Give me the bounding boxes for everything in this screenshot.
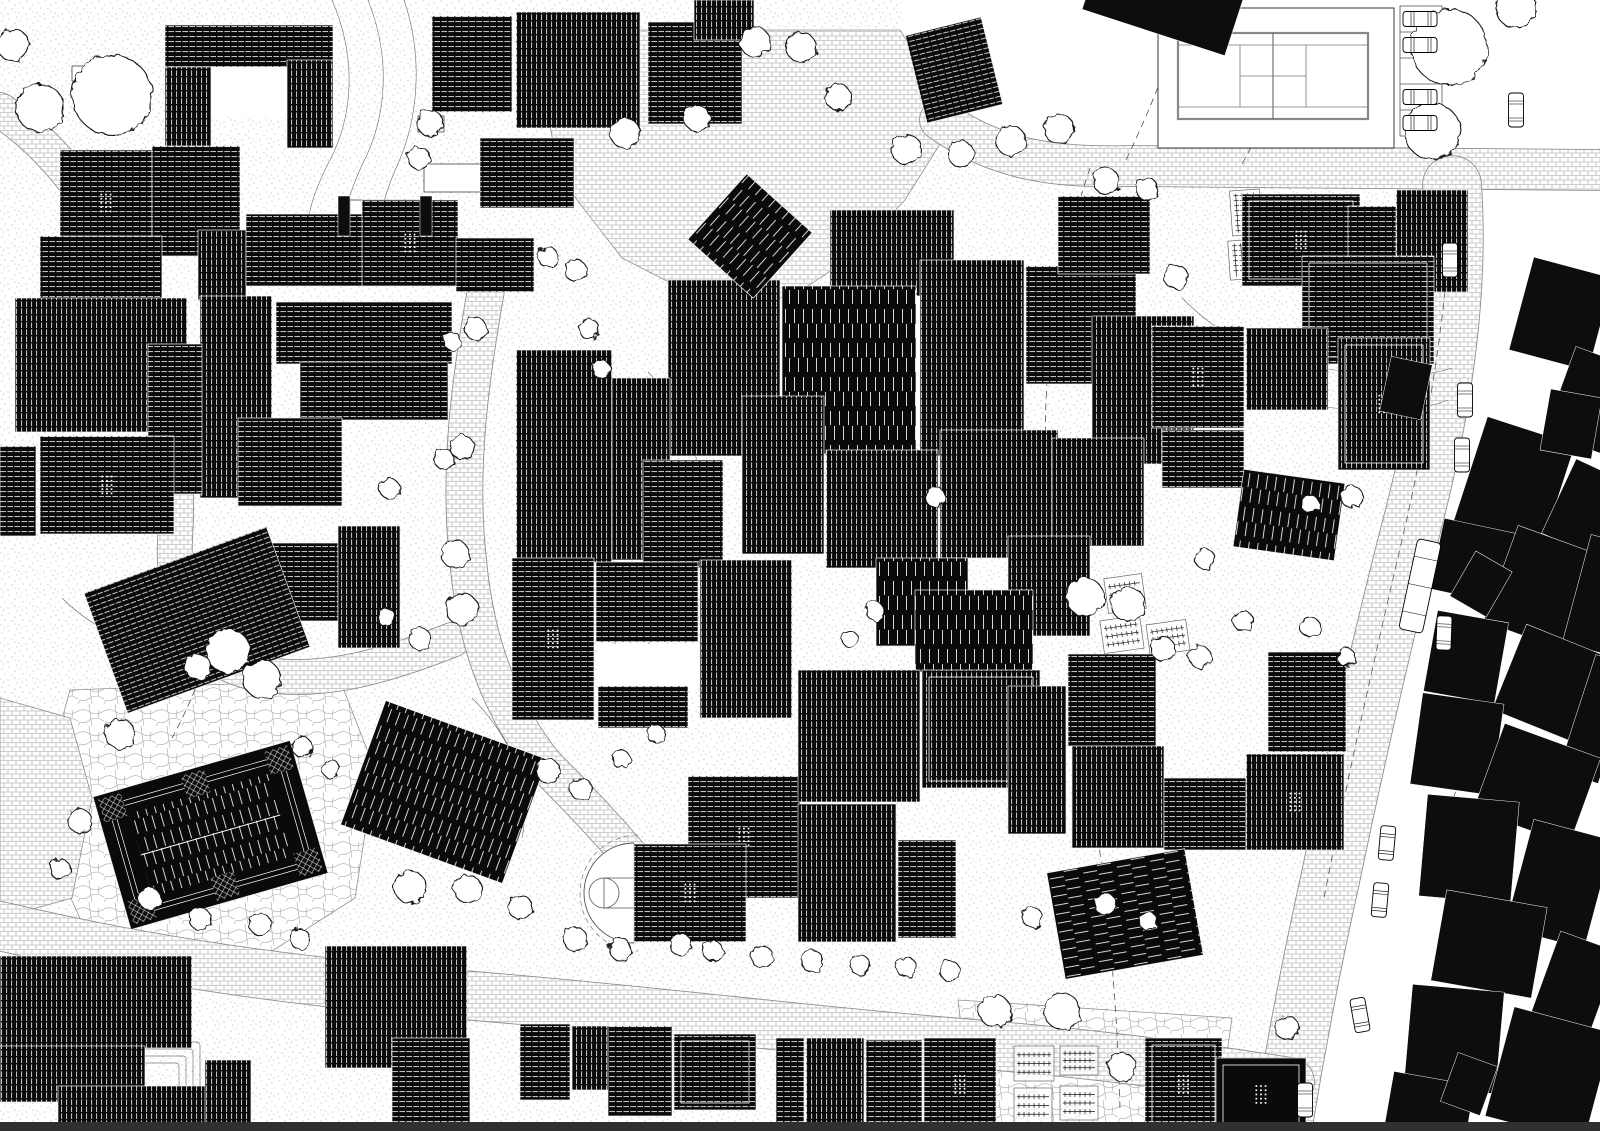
- context-building: [420, 196, 432, 236]
- rooflight-dot: [1300, 231, 1302, 233]
- tree: [996, 126, 1026, 156]
- tree: [1022, 907, 1042, 927]
- car: [1403, 116, 1437, 131]
- rooflight-dot: [964, 1088, 966, 1090]
- building: [287, 60, 333, 148]
- car: [1436, 616, 1452, 651]
- rooflight-dot: [739, 832, 741, 834]
- border-layer: [0, 1122, 1600, 1131]
- building: [920, 260, 1024, 456]
- tree: [1233, 611, 1253, 631]
- tree: [50, 859, 70, 879]
- rooflight-dot: [548, 638, 550, 640]
- building: [516, 350, 612, 562]
- building-roof: [1072, 746, 1164, 848]
- tree: [1044, 993, 1080, 1029]
- rooflight-dot: [1197, 385, 1199, 387]
- building-roof: [300, 362, 448, 420]
- tree: [322, 760, 340, 778]
- tree: [579, 319, 599, 339]
- rooflight-dot: [1187, 1084, 1189, 1086]
- tree: [1094, 893, 1116, 915]
- building: [300, 362, 448, 420]
- building: [1268, 652, 1346, 752]
- car: [1298, 1083, 1313, 1117]
- rooflight-dot: [689, 901, 691, 903]
- context-building: [1423, 610, 1508, 703]
- rooflight-dot: [106, 488, 108, 490]
- building: [362, 200, 458, 286]
- building: [1052, 438, 1144, 546]
- rooflight-dot: [552, 630, 554, 632]
- rooflight-dot: [743, 832, 745, 834]
- tree: [592, 360, 610, 378]
- tree: [434, 449, 454, 469]
- tree: [380, 479, 400, 499]
- rooflight-dot: [105, 206, 107, 208]
- rooflight-dot: [1294, 797, 1296, 799]
- rooflight-dot: [105, 211, 107, 213]
- rooflight-dot: [748, 836, 750, 838]
- context-building: [1419, 794, 1520, 904]
- building-roof: [276, 302, 452, 364]
- rooflight-dot: [1202, 368, 1204, 370]
- tree: [925, 487, 945, 507]
- rooflight-dot: [1305, 243, 1307, 245]
- tree: [536, 759, 560, 783]
- tree: [68, 809, 92, 833]
- context-building: [1431, 890, 1547, 998]
- car-body: [1436, 616, 1452, 651]
- building: [0, 956, 192, 1048]
- rooflight-dot: [1379, 412, 1381, 414]
- building-roof: [915, 590, 1033, 672]
- rooflight-dot: [964, 1092, 966, 1094]
- rooflight-dot: [955, 1084, 957, 1086]
- garden-plot: [1060, 1046, 1098, 1075]
- rooflight-dot: [1187, 1075, 1189, 1077]
- rooflight-dot: [405, 234, 407, 236]
- rooflight-dot: [694, 888, 696, 890]
- tree: [243, 660, 281, 698]
- rooflight-dot: [106, 493, 108, 495]
- car: [1403, 90, 1437, 105]
- building-roof: [0, 446, 36, 536]
- rooflight-dot: [1265, 1102, 1267, 1104]
- rooflight-dot: [1305, 239, 1307, 241]
- garden-plot: [1014, 1088, 1052, 1123]
- car: [1443, 243, 1458, 277]
- rooflight-dot: [1296, 231, 1298, 233]
- tree: [1139, 912, 1157, 930]
- rooflight-dot: [106, 484, 108, 486]
- rooflight-dot: [1178, 1084, 1180, 1086]
- car-body: [1298, 1083, 1313, 1117]
- building: [198, 230, 246, 300]
- building-roof: [572, 1026, 612, 1090]
- rooflight-dot: [409, 234, 411, 236]
- building: [915, 590, 1033, 672]
- rooflight-dot: [739, 840, 741, 842]
- rooflight-dot: [557, 634, 559, 636]
- building-roof: [238, 418, 342, 506]
- rooflight-dot: [1265, 1094, 1267, 1096]
- tree: [1195, 549, 1215, 569]
- rooflight-dot: [111, 484, 113, 486]
- rooflight-dot: [405, 246, 407, 248]
- tree: [1275, 1016, 1299, 1040]
- building-roof: [866, 1040, 922, 1131]
- rooflight-dot: [552, 647, 554, 649]
- tree: [394, 871, 426, 903]
- rooflight-dot: [1290, 793, 1292, 795]
- building: [516, 12, 640, 128]
- tree: [684, 105, 710, 131]
- building-roof: [516, 350, 612, 562]
- rooflight-dot: [557, 630, 559, 632]
- site-plan: [0, 0, 1600, 1131]
- rooflight-dot: [689, 884, 691, 886]
- rooflight-dot: [1290, 805, 1292, 807]
- building-roof: [898, 840, 956, 938]
- tree: [105, 719, 135, 749]
- building: [40, 236, 162, 302]
- rooflight-dot: [743, 840, 745, 842]
- rooflight-dot: [1300, 235, 1302, 237]
- building: [1072, 746, 1164, 848]
- rooflight-dot: [405, 242, 407, 244]
- building: [338, 526, 400, 648]
- building: [520, 1024, 570, 1100]
- rooflight-dot: [685, 884, 687, 886]
- building: [898, 840, 956, 938]
- building: [1164, 778, 1246, 850]
- tree: [185, 654, 211, 680]
- tree: [609, 938, 631, 960]
- rooflight-dot: [1256, 1102, 1258, 1104]
- rooflight-dot: [748, 845, 750, 847]
- building-roof: [40, 236, 162, 302]
- site-plan-canvas: [0, 0, 1600, 1131]
- tree: [612, 750, 630, 768]
- context-building: [338, 196, 350, 236]
- rooflight-dot: [1299, 797, 1301, 799]
- rooflight-dot: [1202, 380, 1204, 382]
- rooflight-dot: [409, 246, 411, 248]
- tree: [751, 946, 773, 968]
- tree: [249, 913, 271, 935]
- car-body: [1403, 90, 1437, 105]
- rooflight-dot: [689, 896, 691, 898]
- tree: [850, 955, 870, 975]
- building-roof: [1008, 686, 1066, 834]
- rooflight-dot: [414, 251, 416, 253]
- garden-plot: [1060, 1086, 1098, 1120]
- building: [598, 686, 688, 728]
- tree: [446, 593, 478, 625]
- rooflight-dot: [1260, 1098, 1262, 1100]
- building: [798, 670, 920, 802]
- tree: [292, 737, 312, 757]
- tree: [408, 147, 430, 169]
- tree: [465, 318, 487, 340]
- building-roof: [198, 230, 246, 300]
- rooflight-dot: [959, 1075, 961, 1077]
- rooflight-dot: [1183, 1092, 1185, 1094]
- building-roof: [1233, 469, 1345, 560]
- building: [596, 562, 698, 642]
- tree: [786, 32, 816, 62]
- rooflight-dot: [1294, 793, 1296, 795]
- rooflight-dot: [1300, 239, 1302, 241]
- garden-plot: [1100, 615, 1144, 653]
- rooflight-dot: [1193, 380, 1195, 382]
- rooflight-dot: [1305, 248, 1307, 250]
- rooflight-dot: [1187, 1079, 1189, 1081]
- building: [776, 1038, 804, 1131]
- building: [1246, 328, 1328, 410]
- building: [205, 1060, 251, 1131]
- rooflight-dot: [405, 251, 407, 253]
- building-roof: [0, 956, 192, 1048]
- rooflight-dot: [743, 836, 745, 838]
- building: [456, 238, 534, 292]
- rooflight-dot: [1256, 1094, 1258, 1096]
- building-roof: [1068, 654, 1156, 746]
- car: [1458, 383, 1473, 417]
- building-roof: [287, 60, 333, 148]
- rooflight-dot: [955, 1075, 957, 1077]
- courtyard: [598, 644, 700, 688]
- tree: [703, 941, 723, 961]
- building: [700, 560, 792, 718]
- building: [674, 1034, 756, 1110]
- rooflight-dot: [1193, 376, 1195, 378]
- rooflight-dot: [1299, 810, 1301, 812]
- rooflight-dot: [1260, 1094, 1262, 1096]
- tree: [443, 332, 461, 350]
- rooflight-dot: [548, 647, 550, 649]
- tree: [1301, 495, 1319, 513]
- tree: [565, 260, 587, 282]
- car-body: [1403, 12, 1437, 27]
- car-body: [1403, 116, 1437, 131]
- building-roof: [1052, 438, 1144, 546]
- rooflight-dot: [964, 1084, 966, 1086]
- building: [826, 450, 938, 568]
- rooflight-dot: [1300, 248, 1302, 250]
- building: [572, 1026, 612, 1090]
- building: [866, 1040, 922, 1131]
- tree: [1093, 168, 1119, 194]
- rooflight-dot: [105, 198, 107, 200]
- building: [1152, 326, 1244, 428]
- rooflight-dot: [111, 476, 113, 478]
- building: [1216, 1058, 1306, 1131]
- building-roof: [392, 1038, 470, 1131]
- rooflight-dot: [110, 202, 112, 204]
- rooflight-dot: [1305, 235, 1307, 237]
- rooflight-dot: [1202, 385, 1204, 387]
- rooflight-dot: [959, 1092, 961, 1094]
- building-roof: [456, 238, 534, 292]
- rooflight-dot: [748, 828, 750, 830]
- rooflight-dot: [743, 828, 745, 830]
- rooflight-dot: [409, 251, 411, 253]
- rooflight-dot: [414, 238, 416, 240]
- tree: [441, 540, 469, 568]
- building-roof: [674, 1034, 756, 1110]
- building-roof: [165, 67, 211, 149]
- rooflight-dot: [557, 638, 559, 640]
- rooflight-dot: [1202, 372, 1204, 374]
- building-roof: [608, 1026, 672, 1116]
- rooflight-dot: [689, 888, 691, 890]
- rooflight-dot: [1183, 1075, 1185, 1077]
- rooflight-dot: [102, 488, 104, 490]
- tree: [948, 141, 974, 167]
- rooflight-dot: [557, 647, 559, 649]
- building: [480, 138, 574, 208]
- car: [1403, 38, 1437, 53]
- tree: [866, 602, 884, 620]
- rooflight-dot: [101, 194, 103, 196]
- tree: [842, 631, 858, 647]
- building-roof: [1162, 430, 1244, 488]
- tree: [189, 908, 211, 930]
- rooflight-dot: [685, 901, 687, 903]
- rooflight-dot: [101, 206, 103, 208]
- building-roof: [205, 1060, 251, 1131]
- tree: [1044, 114, 1074, 144]
- building-roof: [700, 560, 792, 718]
- tree: [139, 888, 161, 910]
- building: [798, 804, 896, 942]
- tree: [563, 927, 587, 951]
- rooflight-dot: [548, 642, 550, 644]
- car: [1455, 438, 1470, 472]
- building-roof: [798, 804, 896, 942]
- tree: [409, 628, 431, 650]
- rooflight-dot: [1294, 810, 1296, 812]
- tree: [891, 134, 921, 164]
- rooflight-dot: [959, 1084, 961, 1086]
- rooflight-dot: [405, 238, 407, 240]
- building-roof: [826, 450, 938, 568]
- tree: [1066, 578, 1104, 616]
- tree: [647, 725, 665, 743]
- tree: [610, 118, 640, 148]
- tree: [740, 27, 770, 57]
- rooflight-dot: [1197, 376, 1199, 378]
- tree: [570, 778, 592, 800]
- building: [238, 418, 342, 506]
- rooflight-dot: [111, 480, 113, 482]
- rooflight-dot: [1296, 248, 1298, 250]
- building-roof: [516, 12, 640, 128]
- building-roof: [920, 260, 1024, 456]
- rooflight-dot: [748, 840, 750, 842]
- rooflight-dot: [1183, 1079, 1185, 1081]
- building-roof: [480, 138, 574, 208]
- rooflight-dot: [102, 493, 104, 495]
- rooflight-dot: [685, 888, 687, 890]
- building: [1145, 1038, 1222, 1131]
- building: [608, 1026, 672, 1116]
- tree: [1300, 617, 1320, 637]
- tree: [1341, 486, 1363, 508]
- rooflight-dot: [110, 198, 112, 200]
- tree: [538, 247, 558, 267]
- building: [1058, 196, 1150, 274]
- tree: [0, 29, 29, 61]
- rooflight-dot: [1178, 1088, 1180, 1090]
- rooflight-dot: [1193, 368, 1195, 370]
- rooflight-dot: [739, 828, 741, 830]
- rooflight-dot: [1178, 1092, 1180, 1094]
- car: [1509, 93, 1524, 127]
- rooflight-dot: [748, 832, 750, 834]
- car-body: [1509, 93, 1524, 127]
- rooflight-dot: [955, 1088, 957, 1090]
- rooflight-dot: [552, 638, 554, 640]
- tree: [508, 895, 532, 919]
- building: [1246, 754, 1344, 850]
- rooflight-dot: [694, 892, 696, 894]
- rooflight-dot: [1290, 797, 1292, 799]
- building-roof: [776, 1038, 804, 1131]
- rooflight-dot: [102, 476, 104, 478]
- building: [1162, 430, 1244, 488]
- rooflight-dot: [955, 1079, 957, 1081]
- tree: [377, 608, 395, 626]
- tree: [896, 957, 916, 977]
- building-roof: [338, 526, 400, 648]
- rooflight-dot: [959, 1079, 961, 1081]
- rooflight-dot: [1260, 1085, 1262, 1087]
- tree: [1151, 637, 1175, 661]
- tree: [801, 950, 823, 972]
- rooflight-dot: [1379, 395, 1381, 397]
- garden-plot: [1014, 1046, 1054, 1081]
- car-body: [1458, 383, 1473, 417]
- car-body: [1443, 243, 1458, 277]
- building: [924, 1038, 996, 1131]
- rooflight-dot: [694, 896, 696, 898]
- platform-outline: [424, 164, 482, 192]
- tree: [454, 875, 482, 903]
- building-roof: [1246, 328, 1328, 410]
- building: [0, 446, 36, 536]
- building: [643, 460, 723, 568]
- building: [742, 396, 824, 554]
- rooflight-dot: [1299, 801, 1301, 803]
- rooflight-dot: [739, 836, 741, 838]
- rooflight-dot: [694, 884, 696, 886]
- building-roof: [643, 460, 723, 568]
- rooflight-dot: [1202, 376, 1204, 378]
- rooflight-dot: [694, 901, 696, 903]
- rooflight-dot: [1296, 235, 1298, 237]
- tree: [669, 933, 691, 955]
- rooflight-dot: [1265, 1098, 1267, 1100]
- building-roof: [1164, 778, 1246, 850]
- building-roof: [1058, 196, 1150, 274]
- car-body: [1371, 882, 1389, 917]
- building: [432, 16, 512, 112]
- rooflight-dot: [101, 211, 103, 213]
- tree: [825, 84, 851, 110]
